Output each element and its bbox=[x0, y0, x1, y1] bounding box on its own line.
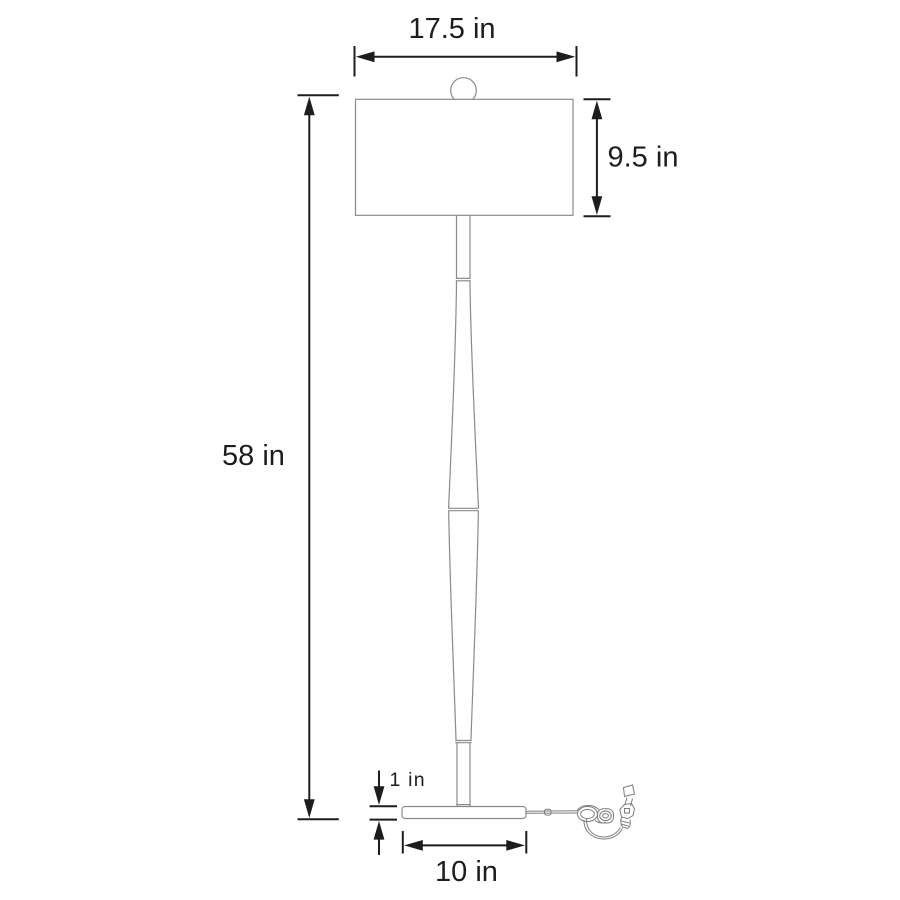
svg-text:17.5 in: 17.5 in bbox=[408, 13, 495, 45]
svg-text:10 in: 10 in bbox=[435, 856, 498, 888]
svg-text:58 in: 58 in bbox=[222, 440, 285, 472]
svg-text:9.5 in: 9.5 in bbox=[608, 142, 679, 174]
svg-text:1 in: 1 in bbox=[390, 769, 426, 791]
